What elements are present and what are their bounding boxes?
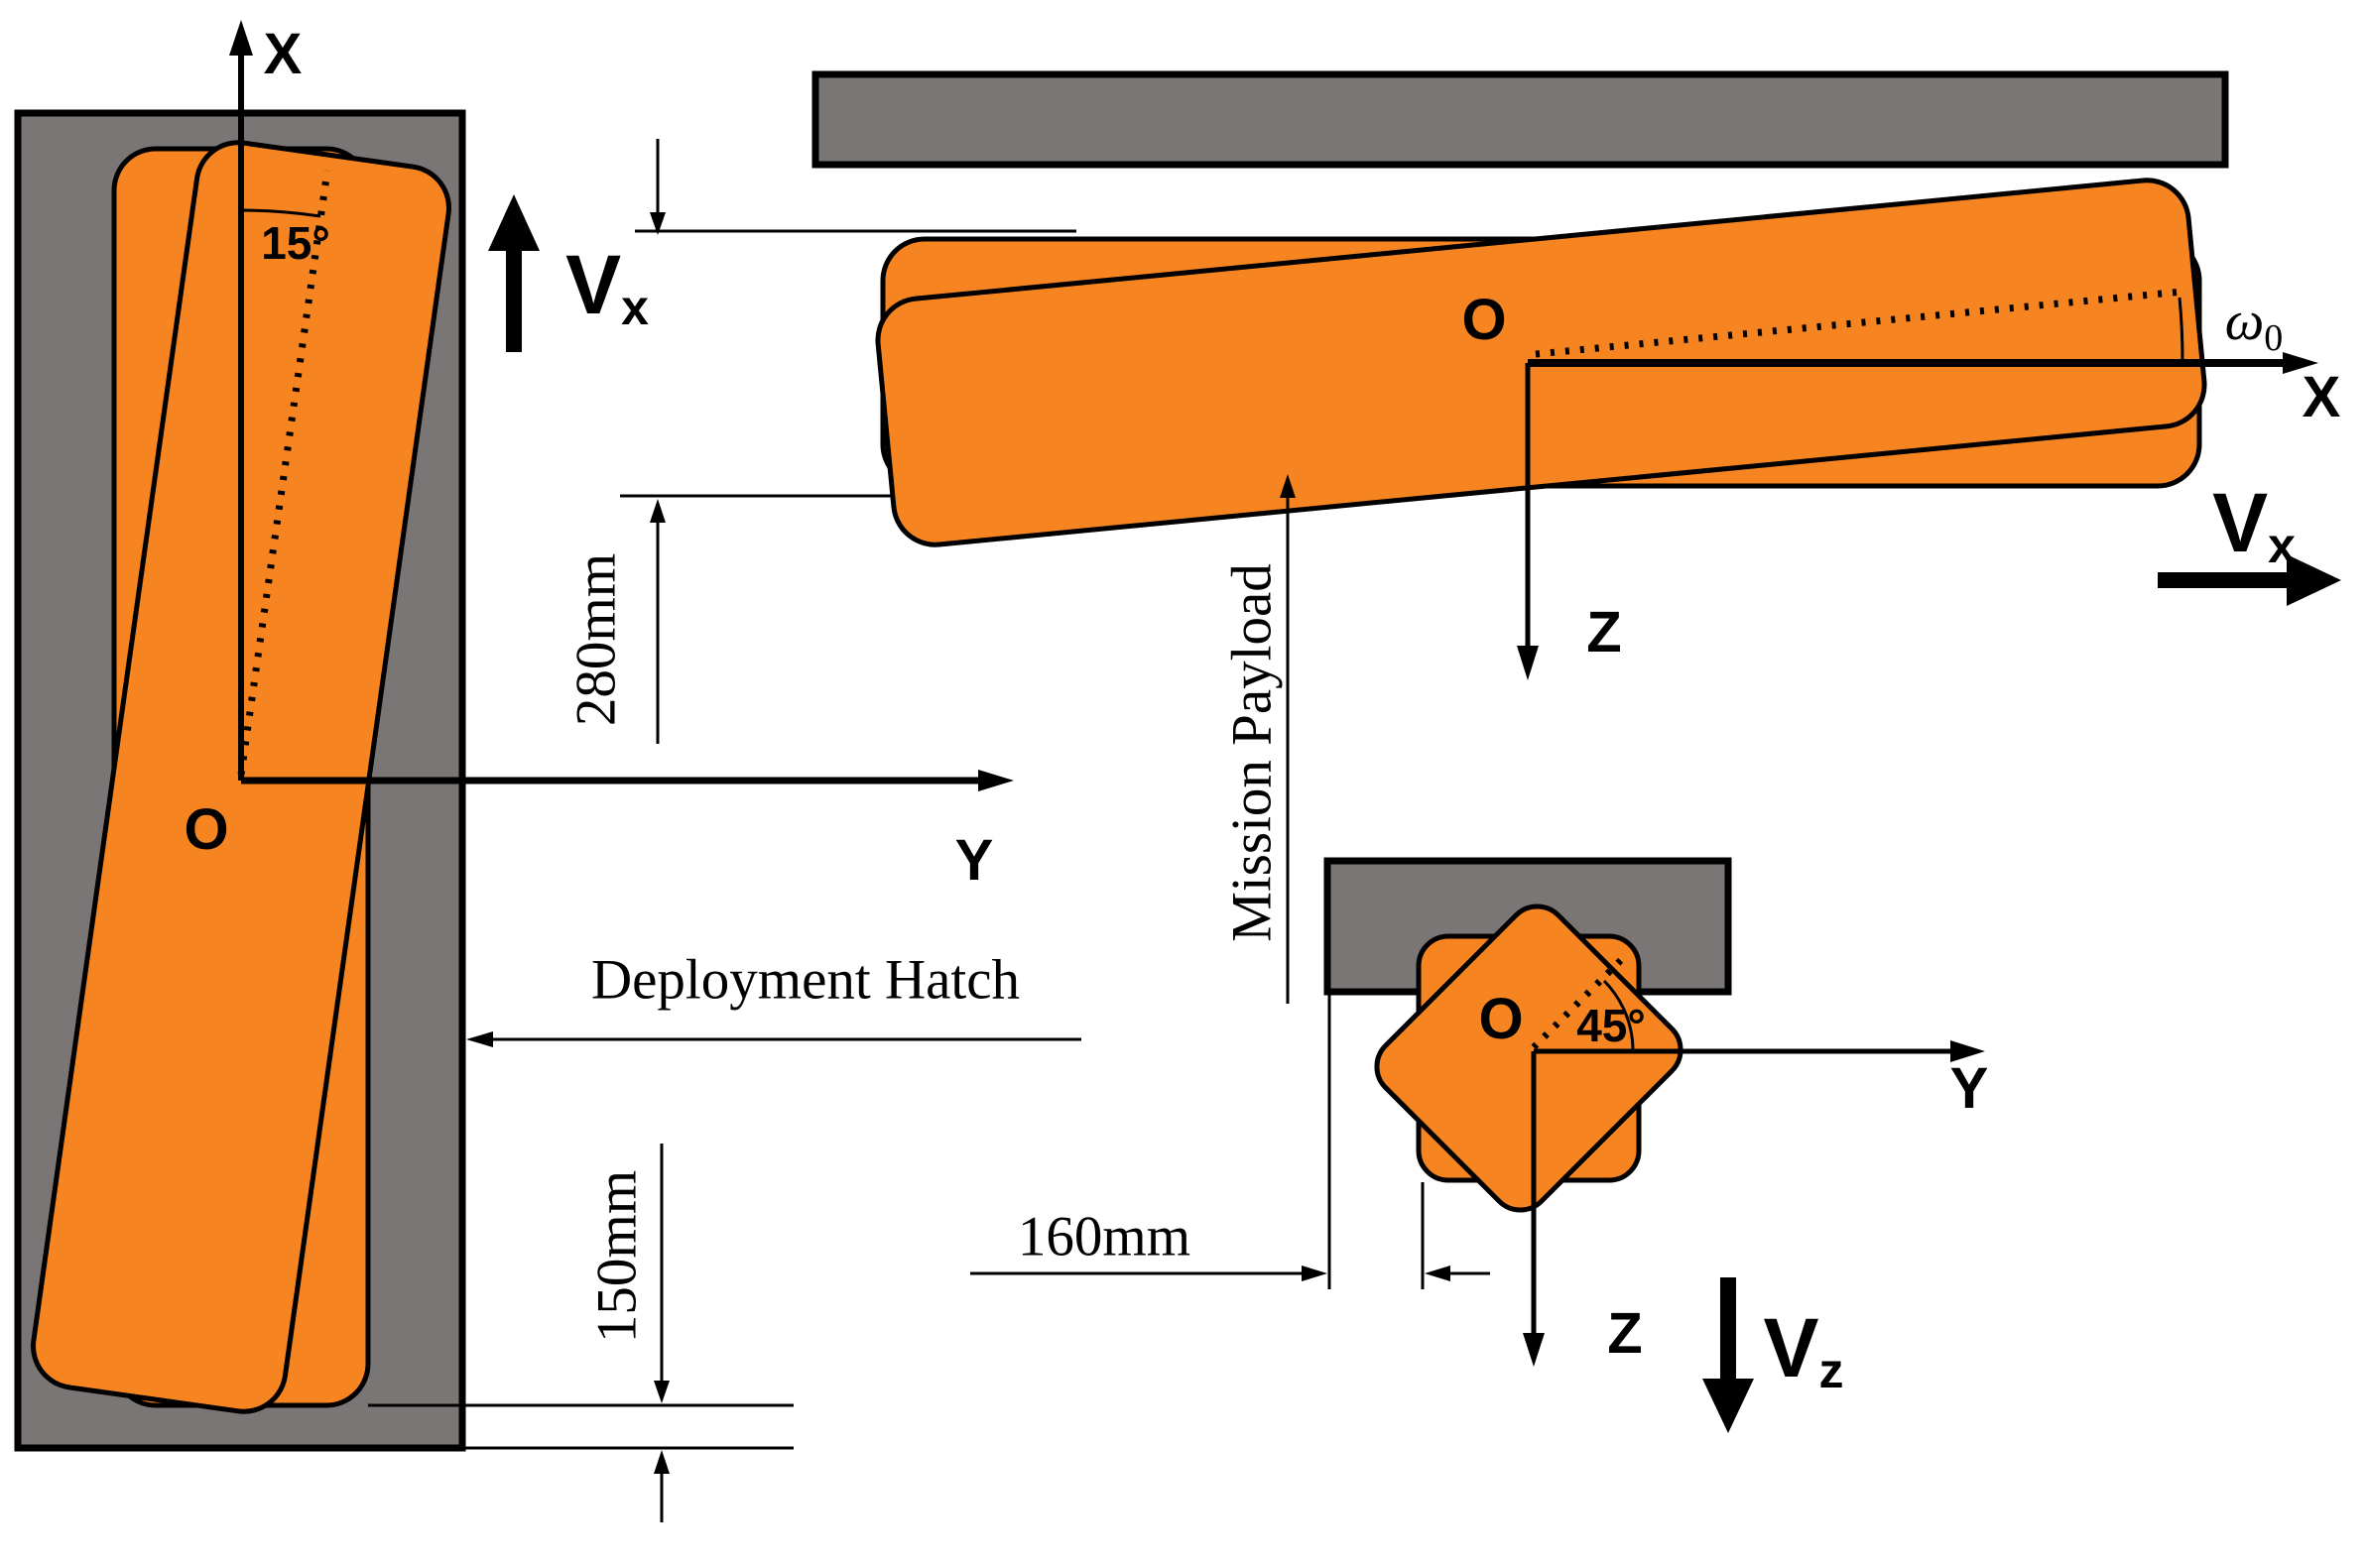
dim-160-arrowhead-left (1425, 1266, 1450, 1281)
vz-base-rear: V (1763, 1306, 1818, 1389)
z-axis-label-top: Z (1586, 604, 1621, 662)
dim-280-label: 280mm (568, 553, 625, 726)
y-axis-arrowhead-side (978, 770, 1014, 791)
vx-vector-label-side: Vx (565, 243, 649, 332)
y-axis-label-side: Y (955, 832, 994, 890)
hatch-wall-top (815, 74, 2225, 165)
z-axis-arrowhead-rear (1523, 1333, 1545, 1367)
origin-label-side: O (184, 801, 228, 859)
hatch-label: Deployment Hatch (591, 952, 1020, 1009)
vz-vector-label-rear: Vz (1763, 1306, 1843, 1395)
dim-150-arrowhead-lower (654, 1450, 670, 1474)
spin-rate-label-top: ω0 (2225, 294, 2284, 357)
diagram-drawing (0, 0, 2368, 1568)
x-axis-label-top: X (2303, 369, 2341, 426)
vz-vector-arrowhead-rear (1702, 1379, 1754, 1433)
hatch-leader-arrowhead (466, 1031, 493, 1047)
origin-label-top: O (1461, 292, 1506, 349)
x-axis-label-side: X (264, 26, 303, 83)
figure-canvas: X O Y 15° Vx 280mm Deployment Hatch 150m… (0, 0, 2368, 1568)
vz-sub-rear: z (1819, 1346, 1844, 1395)
dim-150-arrowhead-upper (654, 1381, 670, 1403)
z-axis-arrowhead-top (1517, 646, 1539, 680)
omega-sub: 0 (2264, 319, 2283, 357)
vx-base-top: V (2212, 481, 2268, 564)
y-axis-label-rear: Y (1950, 1060, 1989, 1118)
tilt-angle-label-side: 15° (261, 220, 330, 266)
vx-sub-side: x (621, 283, 649, 332)
dim-160-label: 160mm (1018, 1209, 1190, 1266)
vx-vector-arrowhead-side (488, 194, 540, 251)
vx-vector-label-top: Vx (2212, 481, 2296, 570)
omega-base: ω (2225, 294, 2265, 349)
vx-sub-top: x (2268, 521, 2296, 570)
z-axis-label-rear: Z (1607, 1305, 1642, 1363)
origin-label-rear: O (1478, 991, 1523, 1048)
roll-angle-label-rear: 45° (1576, 1003, 1646, 1048)
dim-280-arrowhead (650, 499, 666, 523)
dim-160-arrowhead-right (1302, 1266, 1327, 1281)
dim-150-label: 150mm (589, 1170, 646, 1343)
x-axis-arrowhead-side (229, 20, 253, 56)
mission-payload-label: Mission Payload (1224, 563, 1281, 942)
vx-base-side: V (565, 243, 621, 326)
